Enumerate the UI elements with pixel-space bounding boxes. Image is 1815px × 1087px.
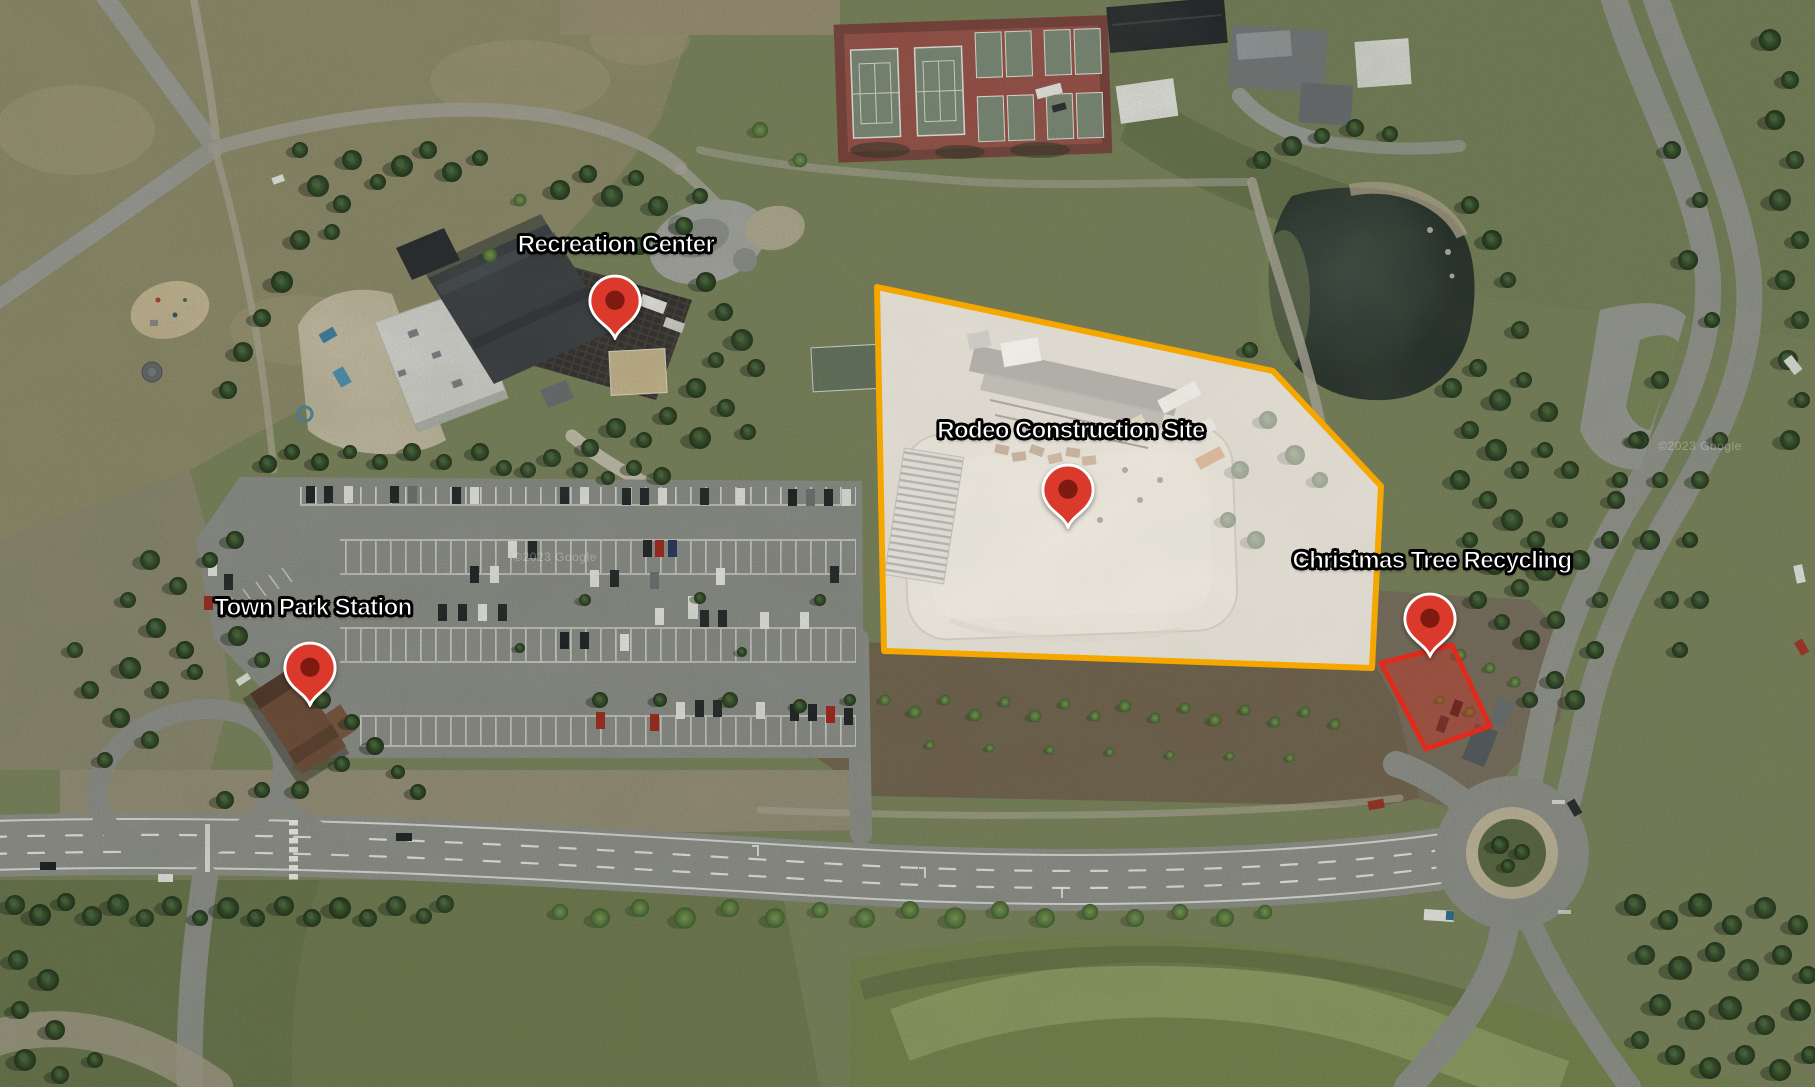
pin-icon [282, 641, 338, 707]
map-label-town-park-station: Town Park Station [214, 594, 411, 622]
google-watermark: ©2023 Google [513, 550, 597, 564]
map-label-recreation-center: Recreation Center [518, 231, 715, 259]
pin-icon [1040, 463, 1096, 529]
map-pin-town-park-station[interactable] [282, 641, 338, 707]
pin-icon [1402, 592, 1458, 658]
map-pin-rodeo-construction-site[interactable] [1040, 463, 1096, 529]
google-watermark: ©2023 Google [1658, 439, 1742, 453]
map-label-rodeo-construction-site: Rodeo Construction Site [937, 417, 1205, 445]
satellite-map[interactable]: Recreation Center Rodeo Construction Sit… [0, 0, 1815, 1087]
map-pin-recreation-center[interactable] [587, 274, 643, 340]
pin-icon [587, 274, 643, 340]
map-label-christmas-tree-recycling: Christmas Tree Recycling [1292, 547, 1571, 575]
map-pin-christmas-tree-recycling[interactable] [1402, 592, 1458, 658]
